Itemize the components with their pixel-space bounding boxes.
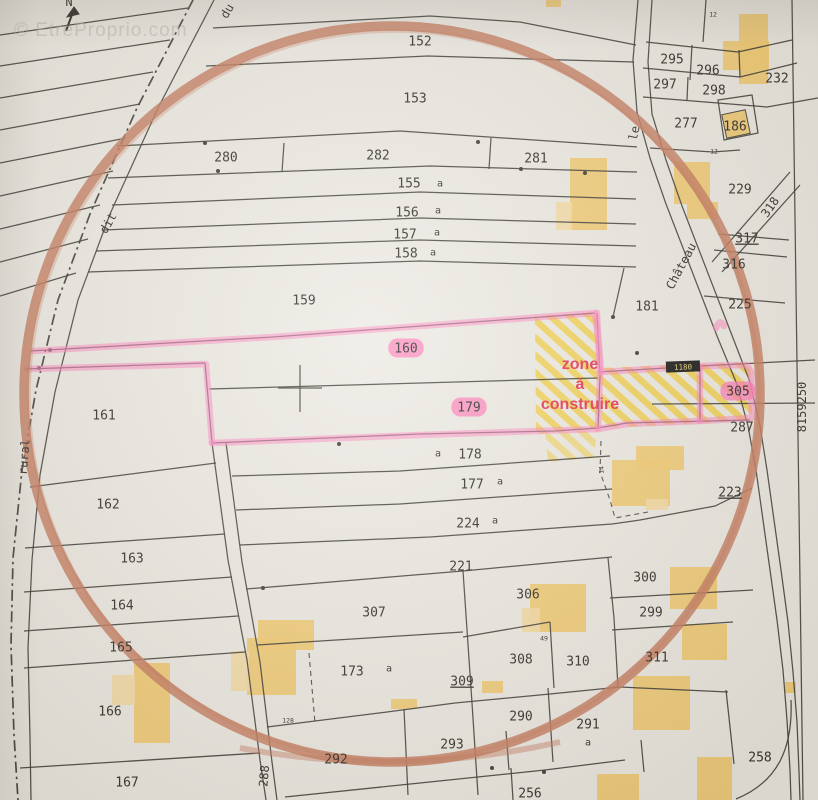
parcel-label-295: 295: [660, 53, 683, 68]
parcel-label-316: 316: [722, 258, 745, 273]
parcel-label-305: 305: [726, 385, 749, 400]
parcel-label-292: 292: [324, 753, 347, 768]
parcel-label-317: 317: [735, 232, 758, 247]
parcel-label-256: 256: [518, 787, 541, 800]
parcel-label-258: 258: [748, 751, 771, 766]
parcel-label-155: 155: [397, 177, 420, 192]
parcel-label-a: a: [585, 738, 591, 749]
parcel-label-le: le: [626, 125, 643, 142]
map-canvas: 1180 N 152153280282281155156157158159161…: [0, 0, 818, 800]
parcel-label-164: 164: [110, 599, 134, 614]
svg-text:1180: 1180: [674, 362, 693, 372]
parcel-label-277: 277: [674, 117, 697, 132]
parcel-label-291: 291: [576, 718, 599, 733]
parcel-label-224: 224: [456, 517, 480, 532]
parcel-label-293: 293: [440, 738, 463, 753]
parcel-label-181: 181: [635, 300, 658, 315]
parcel-label-282: 282: [366, 149, 389, 164]
parcel-label-156: 156: [395, 206, 418, 221]
parcel-label-du: du: [217, 1, 236, 21]
parcel-label-dit: dit: [97, 210, 120, 236]
parcel-label-287: 287: [730, 421, 753, 436]
parcel-label-307: 307: [362, 606, 385, 621]
parcel-label-318: 318: [758, 194, 782, 220]
parcel-label-299: 299: [639, 606, 662, 621]
parcel-label-163: 163: [120, 552, 143, 567]
parcel-label-177: 177: [460, 478, 483, 493]
parcel-label-a: a: [434, 228, 440, 239]
parcel-label-296: 296: [696, 64, 719, 79]
parcel-label-229: 229: [728, 183, 751, 198]
parcel-label-12: 12: [710, 147, 718, 155]
parcel-label-178: 178: [458, 448, 481, 463]
sign-box-1180: 1180: [666, 360, 700, 372]
parcel-label-165: 165: [109, 641, 132, 656]
parcel-label-290: 290: [509, 710, 532, 725]
parcel-label-Château: Château: [663, 240, 699, 291]
parcel-label-300: 300: [633, 571, 656, 586]
parcel-label-49: 49: [540, 634, 548, 642]
parcel-label-167: 167: [115, 776, 138, 791]
parcel-label-128: 128: [282, 716, 294, 724]
zone-label-line1: zone: [510, 355, 650, 375]
parcel-label-166: 166: [98, 705, 121, 720]
parcel-label-14: 14: [597, 466, 605, 474]
parcel-label-298: 298: [702, 84, 725, 99]
parcel-label-153: 153: [403, 92, 426, 107]
parcel-label-309: 309: [450, 675, 473, 690]
parcel-label-225: 225: [728, 298, 751, 313]
parcel-label-a: a: [435, 206, 441, 217]
parcel-label-a: a: [435, 449, 441, 460]
parcel-label-158: 158: [394, 247, 417, 262]
parcel-label-a: a: [497, 477, 503, 488]
parcel-label-a: a: [386, 664, 392, 675]
parcel-label-186: 186: [723, 120, 746, 135]
zone-a-construire-label: zone à construire: [510, 355, 650, 415]
parcel-label-160: 160: [394, 342, 417, 357]
parcel-label-152: 152: [408, 35, 431, 50]
parcel-label-a: a: [437, 179, 443, 190]
parcel-label-161: 161: [92, 409, 115, 424]
parcel-label-306: 306: [516, 588, 539, 603]
zone-label-line2: à: [510, 375, 650, 395]
parcel-label-221: 221: [449, 560, 472, 575]
parcel-label-311: 311: [645, 651, 668, 666]
parcel-label-179: 179: [457, 401, 480, 416]
parcel-label-8159250: 8159250: [795, 382, 809, 433]
parcel-label-281: 281: [524, 152, 547, 167]
parcel-label-a: a: [430, 248, 436, 259]
parcel-label-173: 173: [340, 665, 363, 680]
parcel-label-157: 157: [393, 228, 416, 243]
parcel-label-12: 12: [709, 10, 717, 18]
parcel-label-159: 159: [292, 294, 315, 309]
cadastral-map: 1180 N 152153280282281155156157158159161…: [0, 0, 818, 800]
parcel-label-288: 288: [256, 765, 272, 788]
parcel-label-297: 297: [653, 78, 676, 93]
parcel-label-308: 308: [509, 653, 532, 668]
parcel-label-223: 223: [718, 486, 741, 501]
svg-text:N: N: [65, 0, 72, 9]
parcel-label-310: 310: [566, 655, 589, 670]
parcel-label-280: 280: [214, 151, 237, 166]
parcel-label-a: a: [492, 516, 498, 527]
parcel-label-162: 162: [96, 498, 119, 513]
parcel-label-232: 232: [765, 72, 788, 87]
zone-label-line3: construire: [510, 395, 650, 415]
watermark: © EtreProprio.com: [14, 20, 188, 42]
